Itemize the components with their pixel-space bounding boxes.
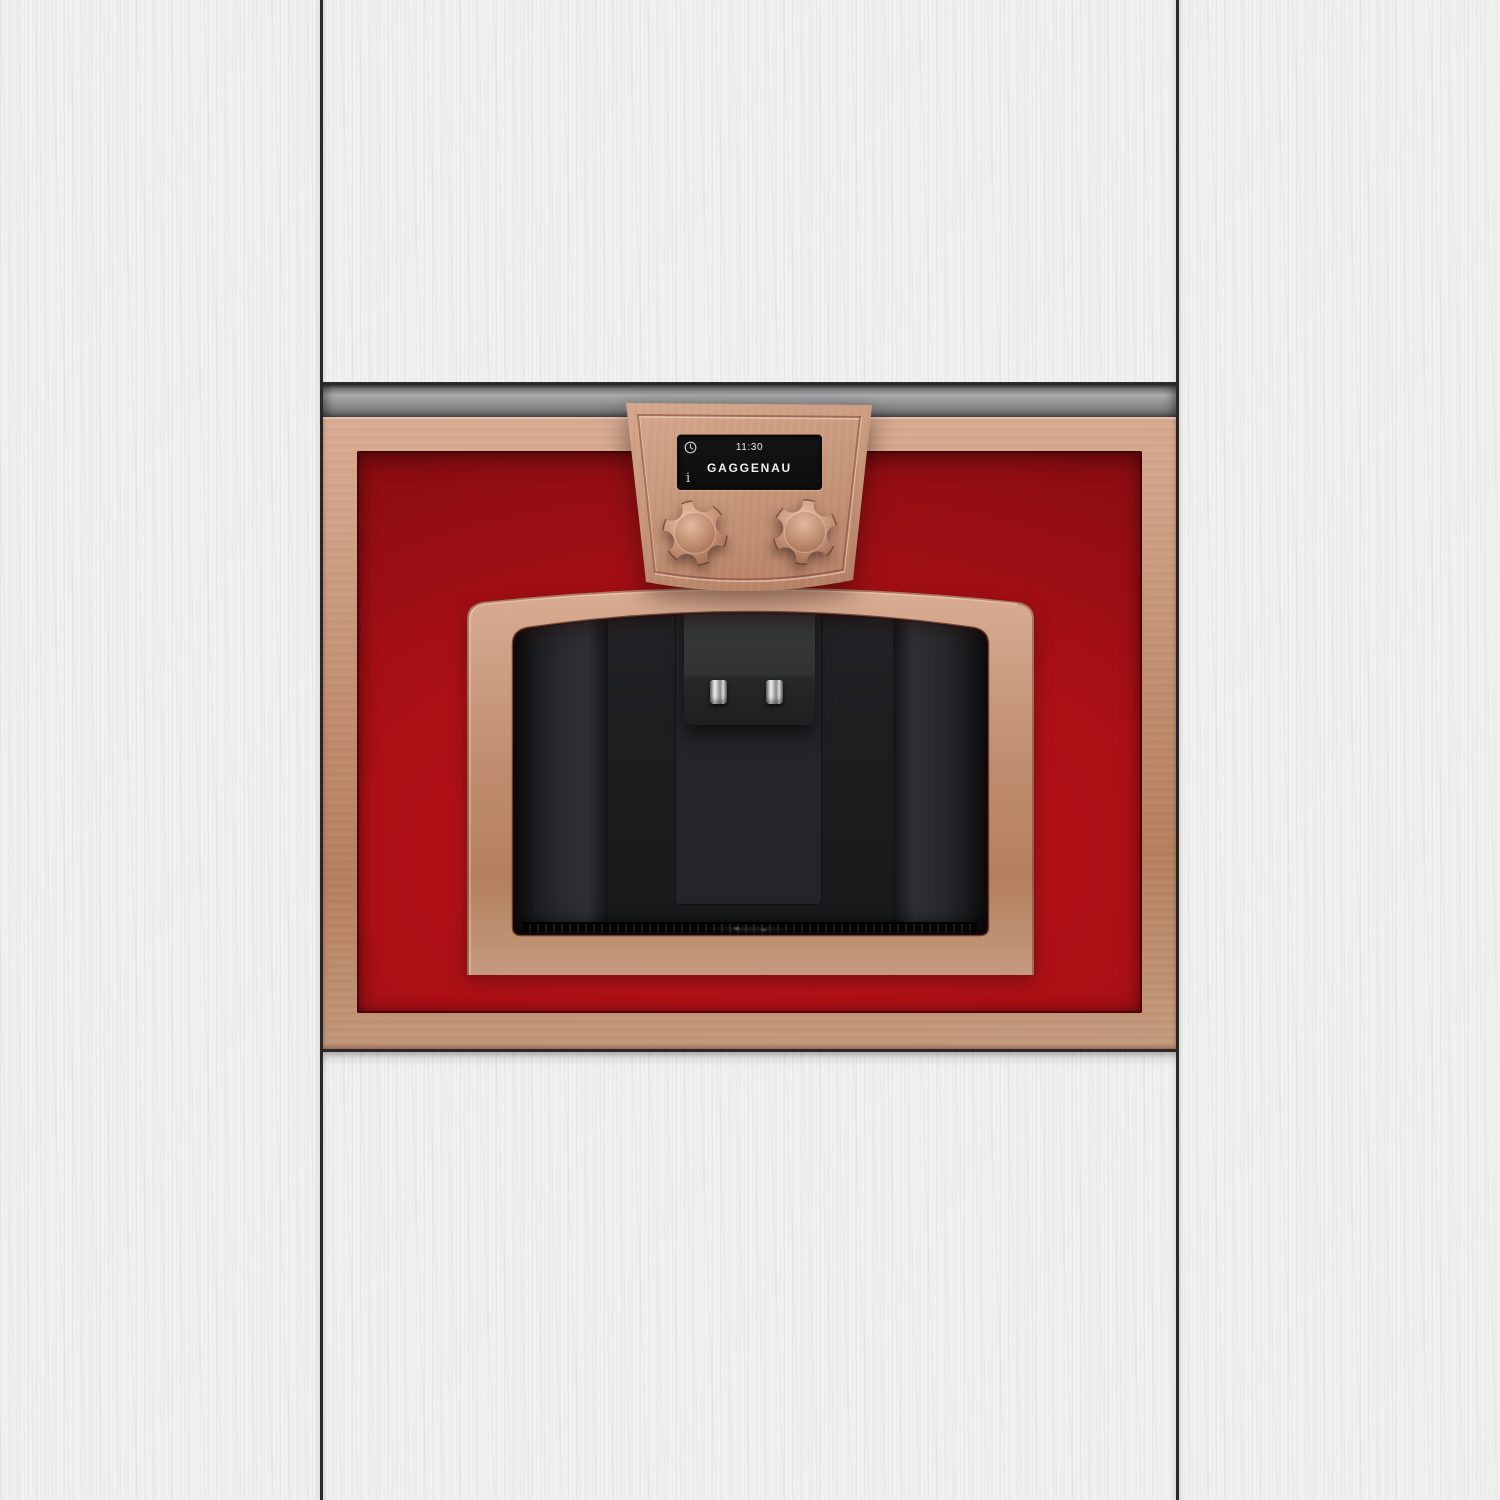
- info-icon: i: [686, 471, 690, 486]
- control-panel-face: 11:30 GAGGENAU i: [624, 398, 874, 604]
- status-display[interactable]: 11:30 GAGGENAU i: [677, 435, 822, 490]
- brand-logo: GAGGENAU: [677, 461, 822, 475]
- lower-door-shadow: [323, 1052, 1176, 1066]
- cabinet-seam-right: [1176, 0, 1179, 1500]
- kitchen-scene: 11:30 GAGGENAU i: [0, 0, 1500, 1500]
- control-panel: 11:30 GAGGENAU i: [624, 398, 874, 604]
- clock-time: 11:30: [677, 442, 822, 453]
- copper-arch-frame: [467, 586, 1034, 975]
- left-knob[interactable]: [661, 499, 729, 567]
